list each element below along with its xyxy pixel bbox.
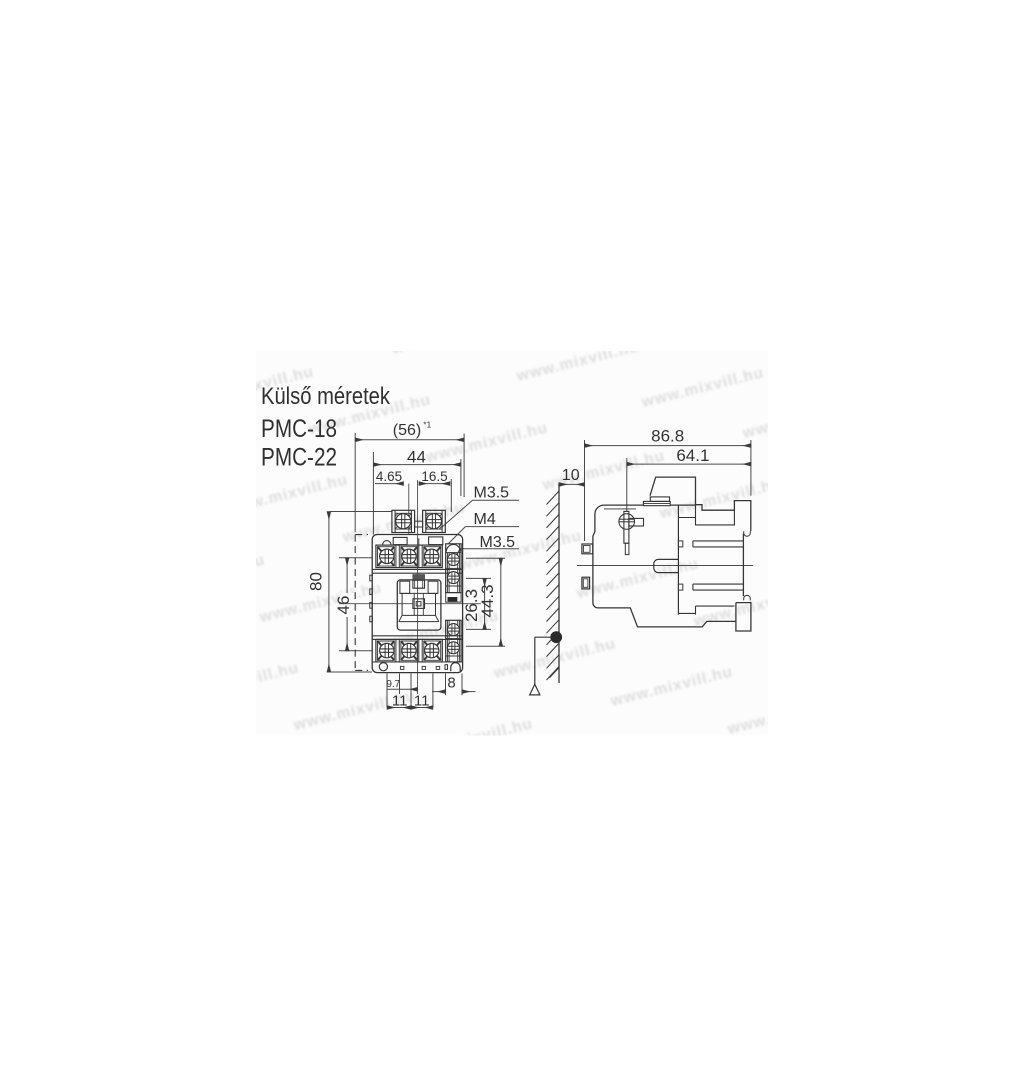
- svg-text:80: 80: [307, 572, 326, 591]
- svg-text:16.5: 16.5: [421, 469, 447, 484]
- svg-text:M3.5: M3.5: [480, 534, 516, 551]
- svg-text:44.3: 44.3: [478, 584, 497, 617]
- svg-text:www.mixvill.hu: www.mixvill.hu: [774, 503, 901, 550]
- svg-text:www.mixvill.hu: www.mixvill.hu: [140, 551, 267, 598]
- svg-text:PMC-18: PMC-18: [261, 415, 337, 443]
- svg-text:64.1: 64.1: [676, 446, 709, 465]
- svg-text:Külső méretek: Külső méretek: [261, 383, 391, 410]
- svg-text:*1: *1: [423, 420, 431, 430]
- svg-text:8: 8: [447, 675, 455, 692]
- svg-text:9.7: 9.7: [386, 679, 400, 690]
- svg-text:10: 10: [562, 467, 580, 484]
- svg-text:46: 46: [334, 596, 353, 615]
- svg-text:4.65: 4.65: [376, 469, 402, 484]
- svg-text:M4: M4: [474, 511, 496, 528]
- svg-text:44: 44: [407, 447, 426, 466]
- svg-text:86.8: 86.8: [651, 426, 684, 445]
- svg-text:PMC-22: PMC-22: [261, 444, 337, 472]
- svg-text:(56): (56): [393, 422, 421, 439]
- svg-text:M3.5: M3.5: [474, 485, 510, 502]
